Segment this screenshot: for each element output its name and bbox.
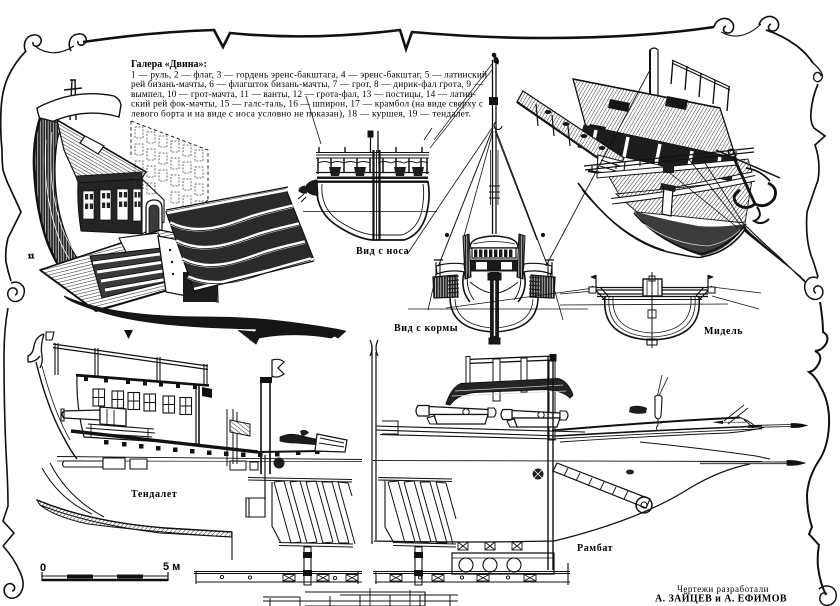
- svg-text:Мидель: Мидель: [704, 326, 743, 337]
- svg-text:Чертежи разработали: Чертежи разработали: [677, 584, 769, 594]
- svg-text:Галера «Двина»:: Галера «Двина»:: [131, 59, 207, 70]
- svg-text:Вид с кормы: Вид с кормы: [394, 323, 458, 334]
- svg-text:левого борта и на виде с носа: левого борта и на виде с носа условно не…: [131, 108, 471, 119]
- svg-text:рей бизань-мачты, 6 — флагшток: рей бизань-мачты, 6 — флагшток бизань-ма…: [131, 79, 484, 90]
- svg-text:Тендалет: Тендалет: [131, 489, 177, 500]
- svg-text:11: 11: [28, 253, 34, 260]
- svg-text:1 — руль, 2 — флаг, 3 — горден: 1 — руль, 2 — флаг, 3 — гордень эренс-ба…: [131, 70, 487, 81]
- svg-text:5 м: 5 м: [163, 561, 180, 573]
- svg-text:А. ЗАЙЦЕВ и А. ЕФИМОВ: А. ЗАЙЦЕВ и А. ЕФИМОВ: [655, 593, 787, 605]
- svg-text:0: 0: [40, 562, 46, 574]
- svg-text:вымпел, 10 — грот-мачта, 11 —: вымпел, 10 — грот-мачта, 11 — ванты, 12 …: [131, 89, 476, 100]
- svg-text:Вид с носа: Вид с носа: [356, 246, 409, 257]
- svg-text:Рамбат: Рамбат: [577, 543, 613, 554]
